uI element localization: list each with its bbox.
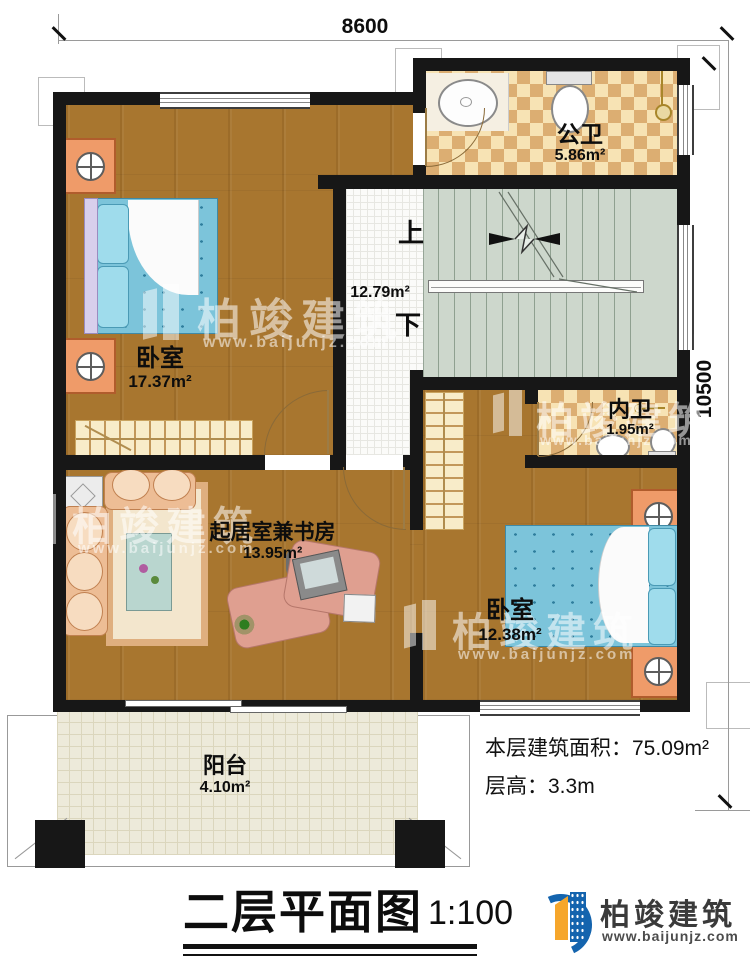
wall <box>410 370 423 530</box>
shower-arm <box>661 71 663 107</box>
sofa-cushion <box>66 592 103 631</box>
dimension-tick <box>52 26 67 41</box>
watermark-logo-icon <box>163 284 179 340</box>
room-label-inner-bath: 内卫 <box>590 398 670 421</box>
title-rule-thick <box>183 944 477 949</box>
floor-area-label: 本层建筑面积： <box>485 737 632 760</box>
floor-area-note: 本层建筑面积：75.09m² <box>485 732 709 762</box>
dimension-extension <box>58 14 59 44</box>
dimension-tick <box>718 794 733 809</box>
wall <box>318 175 690 189</box>
basin-drain <box>460 97 472 107</box>
door-leaf <box>403 467 405 529</box>
pillow <box>97 204 129 264</box>
stair-walkline-icon <box>423 189 677 377</box>
window <box>677 85 694 155</box>
toilet-tank <box>546 71 592 85</box>
room-area-balcony: 4.10m² <box>180 780 270 797</box>
window <box>160 92 310 109</box>
watermark-logo-icon <box>404 604 416 649</box>
logo-building-blue-icon <box>570 892 586 942</box>
floor-height-label: 层高： <box>485 775 548 798</box>
brand-website: www.baijunjz.com <box>602 928 739 944</box>
wall <box>413 58 426 113</box>
lamp-icon <box>76 152 105 181</box>
stair-up-label: 上 <box>395 220 427 247</box>
room-label-bedroom-right: 卧室 <box>460 598 560 623</box>
room-area-public-bath: 5.86m² <box>500 148 660 165</box>
plan-scale: 1:100 <box>428 896 513 932</box>
watermark-logo-icon <box>422 600 436 650</box>
rug-flower <box>139 564 148 573</box>
brand-logo: 柏竣建筑 www.baijunjz.com <box>528 886 743 961</box>
door-leaf <box>327 390 329 454</box>
wall <box>413 58 690 71</box>
watermark-logo-icon <box>493 393 504 434</box>
balcony-post <box>35 820 85 868</box>
bed-headboard <box>84 198 98 334</box>
bedroom-left-floor <box>66 105 413 175</box>
door-leaf <box>425 108 427 166</box>
floor-height-note: 层高：3.3m <box>485 770 595 800</box>
wall <box>53 455 265 470</box>
shower-head-icon <box>655 104 672 121</box>
room-label-balcony: 阳台 <box>180 754 270 777</box>
stair-area-label: 12.79m² <box>340 285 420 302</box>
sofa-cushion <box>66 552 103 591</box>
wardrobe <box>75 420 253 460</box>
stair-down-label: 下 <box>392 312 424 339</box>
room-label-public-bath: 公卫 <box>500 122 660 146</box>
room-label-living-study: 起居室兼书房 <box>200 522 345 544</box>
dimension-extension <box>695 810 750 811</box>
wall <box>423 377 690 390</box>
watermark-url: www.baijunjz.com <box>458 646 635 663</box>
floor-height-value: 3.3m <box>548 775 595 798</box>
rug-flower <box>151 576 159 584</box>
wall <box>525 455 690 468</box>
pillow <box>648 528 676 586</box>
balcony-post <box>395 820 445 868</box>
room-area-inner-bath: 1.95m² <box>585 422 675 438</box>
window <box>480 700 640 716</box>
watermark-logo-icon <box>509 390 522 436</box>
plan-title: 二层平面图 <box>183 888 423 936</box>
dimension-line-right <box>728 40 729 810</box>
dimension-line-top <box>58 40 728 41</box>
pillow <box>97 266 129 328</box>
window <box>677 225 694 350</box>
watermark-logo-icon <box>24 498 36 543</box>
nightstand <box>64 138 116 194</box>
floor-plan-page: 8600 10500 柏竣建筑 www.baijunjz.com 柏竣建筑 ww… <box>0 0 750 973</box>
title-rule-thin <box>183 954 477 956</box>
watermark-logo-icon <box>143 288 157 339</box>
pillow <box>648 588 676 645</box>
dimension-tick <box>720 26 735 41</box>
room-area-living-study: 13.95m² <box>200 546 345 563</box>
watermark-logo-icon <box>42 494 56 544</box>
room-area-bedroom-right: 12.38m² <box>460 626 560 644</box>
nightstand <box>64 338 116 394</box>
wardrobe-rod <box>76 438 252 440</box>
sliding-door-panel <box>230 706 347 713</box>
floor-area-value: 75.09m² <box>632 737 709 760</box>
wall <box>53 92 66 712</box>
wardrobe-rod <box>443 393 445 529</box>
room-label-bedroom-left: 卧室 <box>110 346 210 371</box>
lamp-icon <box>644 657 673 686</box>
dimension-label-top: 8600 <box>320 16 410 38</box>
wardrobe <box>425 392 464 530</box>
room-area-bedroom-left: 17.37m² <box>110 373 210 391</box>
keyboard <box>343 594 376 623</box>
watermark-url: www.baijunjz.com <box>203 334 389 352</box>
lamp-icon <box>76 352 105 381</box>
sliding-door-panel <box>125 700 242 707</box>
